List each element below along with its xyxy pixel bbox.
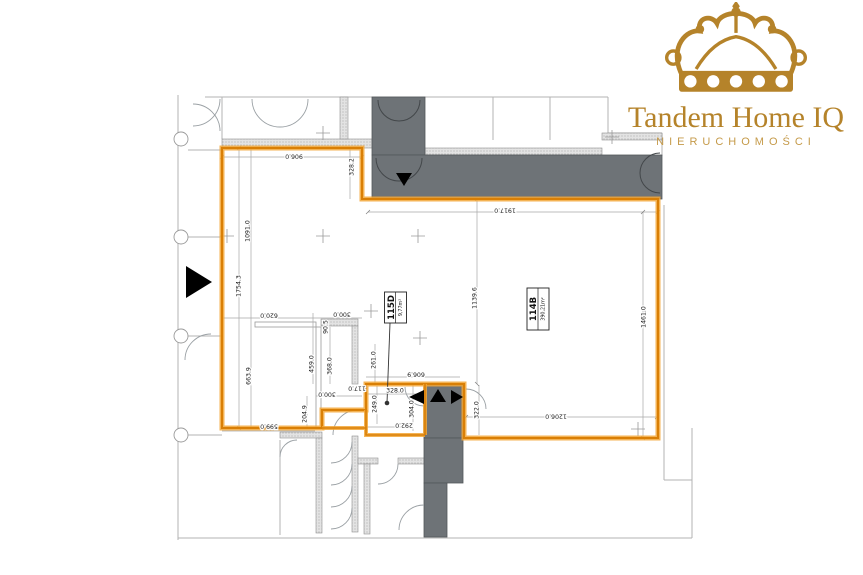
dim-label: 90.5 xyxy=(323,320,330,334)
dim-label: 1091.0 xyxy=(245,220,252,242)
dim-label: 204.9 xyxy=(302,405,309,423)
axis-bubble xyxy=(174,132,188,146)
shaft-area xyxy=(424,483,447,537)
shaft-area xyxy=(424,438,463,483)
dim-label: 292.0 xyxy=(395,422,413,429)
unit-label-114B: 114B 390,21m² xyxy=(527,288,549,330)
dim-label: 1139.6 xyxy=(472,287,479,309)
axis-bubble xyxy=(174,428,188,442)
dim-label: 322.0 xyxy=(474,401,481,419)
dim-label: 1461.0 xyxy=(641,306,648,328)
dim-label: 300.0 xyxy=(318,391,336,398)
dim-label: 459.0 xyxy=(309,355,316,373)
corridor-area xyxy=(372,155,662,199)
common-areas xyxy=(372,97,662,537)
unit-area: 9,77m² xyxy=(398,299,404,316)
dim-label: 606.9 xyxy=(407,371,425,378)
unit-id: 115D xyxy=(387,295,397,320)
dim-label: 906.0 xyxy=(285,153,303,160)
dim-label: 663.9 xyxy=(246,367,253,385)
interior-partitions xyxy=(255,322,321,428)
unit-area: 390,21m² xyxy=(541,297,547,320)
dim-label: 620.0 xyxy=(260,312,278,319)
axis-bubble xyxy=(174,230,188,244)
dim-label: 599.0 xyxy=(260,423,278,430)
shaft-area xyxy=(424,384,463,438)
dim-label: 1754.3 xyxy=(236,275,243,297)
unit-id: 114B xyxy=(529,297,539,321)
brand-logo: Tandem Home IQ NIERUCHOMOŚCI xyxy=(610,2,862,148)
brand-subtitle: NIERUCHOMOŚCI xyxy=(610,136,862,148)
dim-label: 368.0 xyxy=(327,357,334,375)
crown-icon xyxy=(641,2,831,98)
entrance-arrow-right xyxy=(186,266,212,298)
grid-axis-markers xyxy=(174,132,188,442)
vestibule-area xyxy=(372,97,425,155)
dim-label: 1917.0 xyxy=(494,207,516,214)
dim-label: 304.0 xyxy=(409,400,416,418)
dim-label: 261.0 xyxy=(371,351,378,369)
dim-label: 117.0 xyxy=(348,385,366,392)
dim-label: 1206.0 xyxy=(545,413,567,420)
dim-label: 328.0 xyxy=(386,388,404,395)
entrance-arrows xyxy=(186,173,463,404)
axis-bubble xyxy=(174,329,188,343)
brand-name: Tandem Home IQ xyxy=(610,103,862,133)
floorplan-page: 115D 9,77m² 114B 390,21m² 906.0 328.2 19… xyxy=(0,0,863,575)
dim-label: 249.0 xyxy=(372,395,379,413)
dim-label: 328.2 xyxy=(349,158,356,176)
dim-label: 300.0 xyxy=(333,311,351,318)
